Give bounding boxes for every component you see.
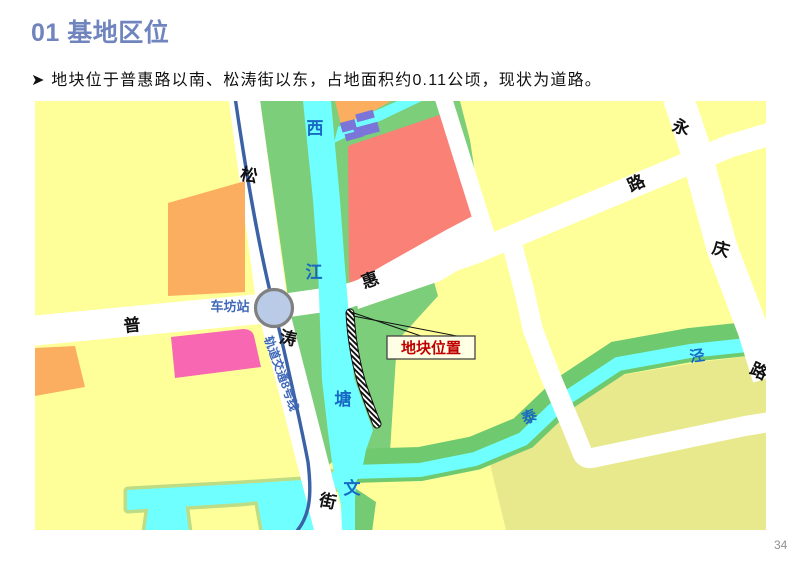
svg-text:地块位置: 地块位置 [401, 339, 461, 357]
svg-text:西: 西 [307, 119, 324, 138]
svg-text:江: 江 [306, 263, 323, 282]
svg-text:泾: 泾 [688, 346, 705, 366]
svg-text:普: 普 [123, 314, 142, 336]
svg-text:车坊站: 车坊站 [210, 299, 249, 314]
svg-text:文: 文 [344, 478, 362, 498]
svg-text:塘: 塘 [335, 389, 352, 409]
